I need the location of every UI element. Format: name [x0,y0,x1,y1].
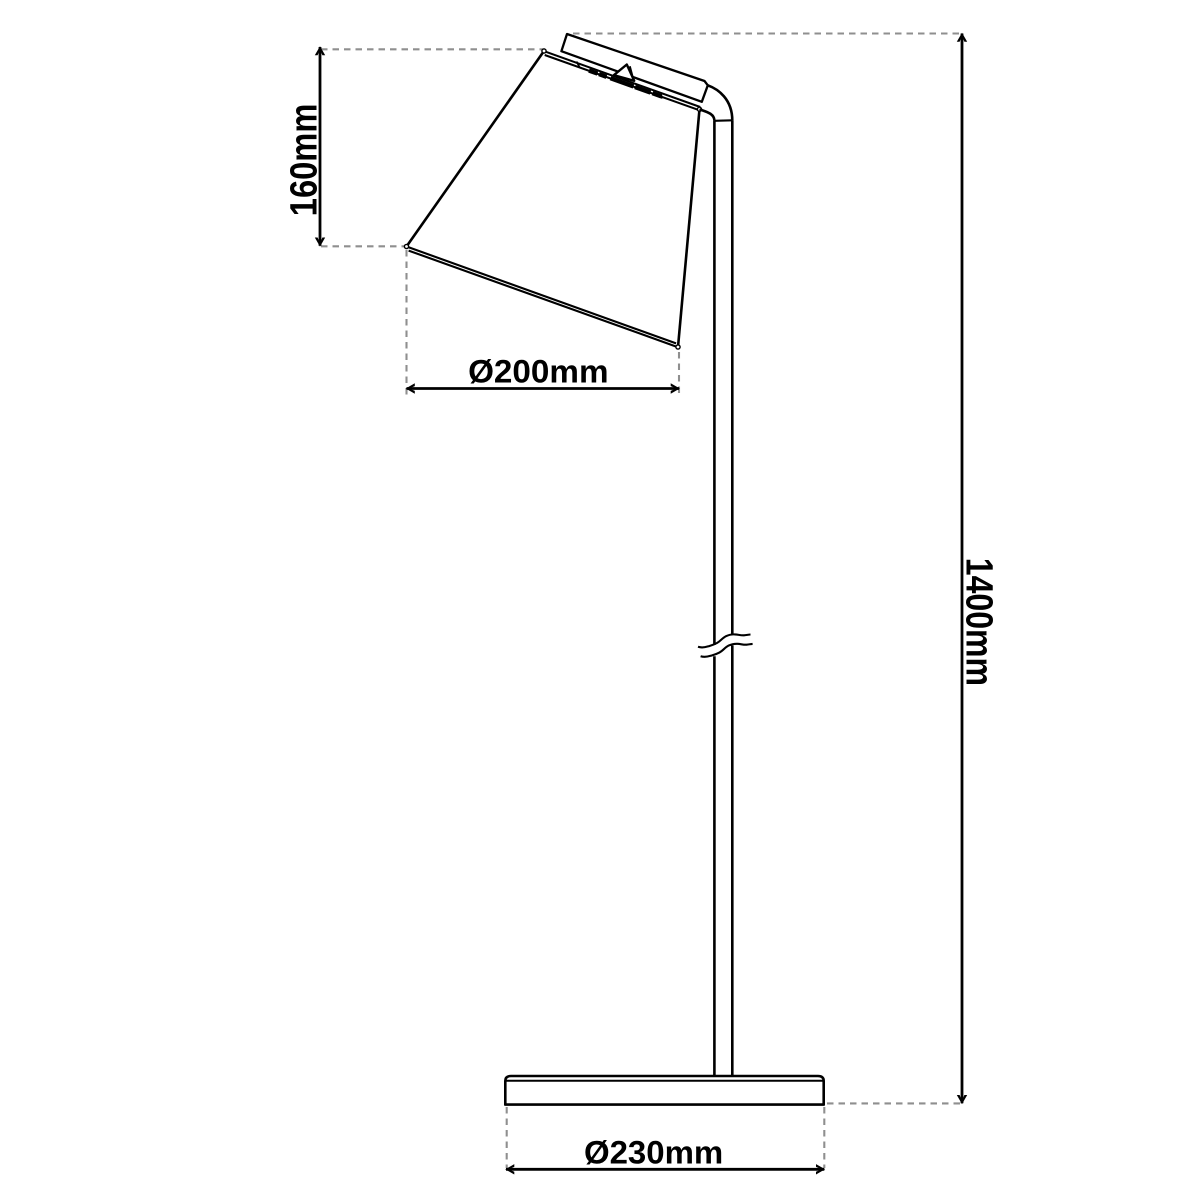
svg-text:160mm: 160mm [283,104,325,217]
svg-text:Ø200mm: Ø200mm [468,353,608,390]
svg-text:Ø230mm: Ø230mm [584,1134,723,1171]
svg-text:1400mm: 1400mm [958,558,1000,686]
